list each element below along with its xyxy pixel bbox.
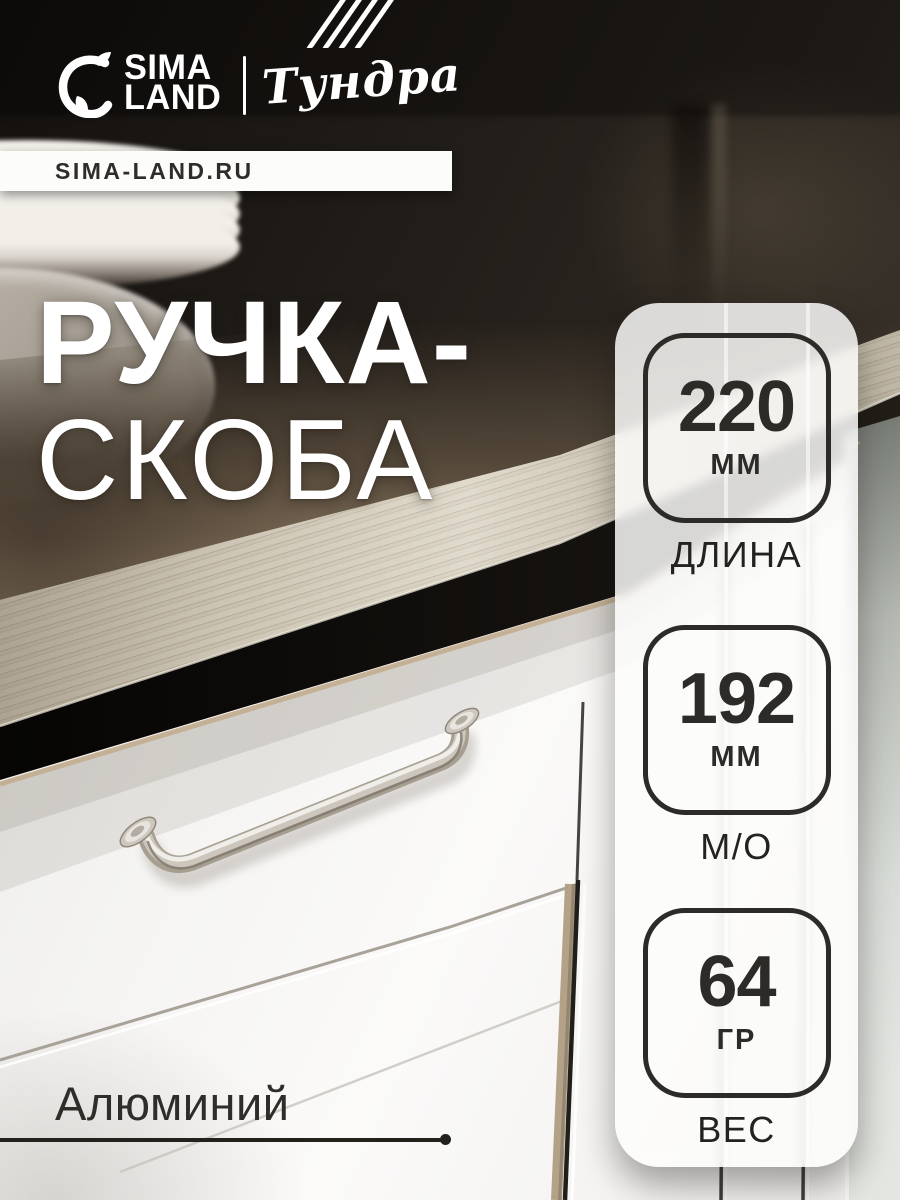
material-pointer-dot xyxy=(440,1134,451,1145)
brand-divider xyxy=(243,56,246,115)
spec-weight: 64 ГР ВЕС xyxy=(615,908,858,1152)
spec-unit: ГР xyxy=(717,1024,757,1057)
spec-box-mounting: 192 ММ xyxy=(643,625,831,815)
spec-unit: ММ xyxy=(710,449,762,482)
spec-mounting-distance: 192 ММ М/О xyxy=(615,625,858,869)
spec-box-length: 220 ММ xyxy=(643,333,831,523)
sima-land-wordmark: SIMA LAND xyxy=(124,53,221,112)
sima-land-whale-icon xyxy=(55,50,119,118)
website-url: SIMA-LAND.RU xyxy=(0,151,452,191)
website-banner: SIMA-LAND.RU xyxy=(0,151,452,191)
material-label: Алюминий xyxy=(55,1076,290,1131)
spec-value: 220 xyxy=(678,369,795,445)
spec-value: 192 xyxy=(678,661,795,737)
spec-label: ВЕС xyxy=(615,1108,858,1152)
spec-length: 220 ММ ДЛИНА xyxy=(615,333,858,577)
tundra-stripes-icon xyxy=(326,0,380,48)
material-pointer-line xyxy=(0,1138,449,1142)
spec-label: ДЛИНА xyxy=(615,533,858,577)
spec-box-weight: 64 ГР xyxy=(643,908,831,1098)
wordmark-line2: LAND xyxy=(124,83,221,113)
product-title-line1: РУЧКА- xyxy=(36,284,472,402)
spec-label: М/О xyxy=(615,825,858,869)
spec-panel: 220 ММ ДЛИНА 192 ММ М/О 64 ГР ВЕС xyxy=(615,303,858,1167)
product-title-line2: СКОБА xyxy=(36,402,472,520)
spec-value: 64 xyxy=(697,944,775,1020)
product-card: SIMA LAND Тундра SIMA-LAND.RU РУЧКА- СКО… xyxy=(0,0,900,1200)
spec-unit: ММ xyxy=(710,741,762,774)
product-title: РУЧКА- СКОБА xyxy=(36,284,472,520)
